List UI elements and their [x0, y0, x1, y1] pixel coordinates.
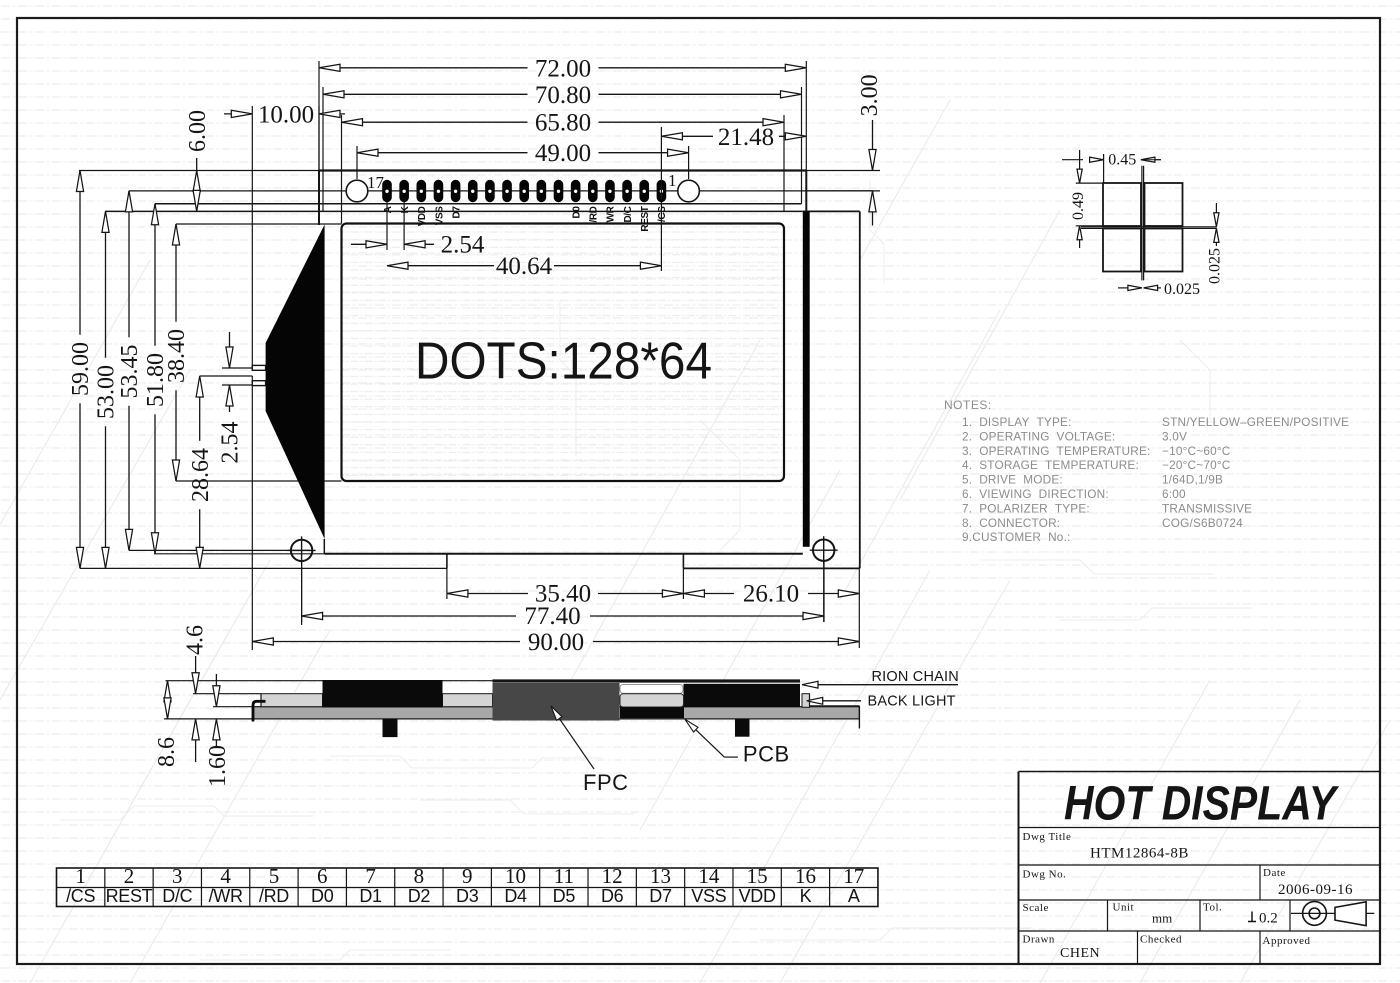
- svg-text:13: 13: [650, 864, 671, 888]
- svg-text:D6: D6: [601, 886, 624, 906]
- svg-text:A: A: [848, 886, 860, 906]
- svg-text:−20°C~70°C: −20°C~70°C: [1162, 458, 1231, 472]
- svg-text:6:00: 6:00: [1162, 487, 1186, 501]
- svg-text:COG/S6B0724: COG/S6B0724: [1162, 516, 1243, 530]
- svg-text:Dwg No.: Dwg No.: [1023, 869, 1067, 881]
- svg-text:CHEN: CHEN: [1060, 946, 1100, 961]
- svg-text:/CS: /CS: [66, 886, 95, 906]
- svg-text:1/64D,1/9B: 1/64D,1/9B: [1162, 473, 1223, 487]
- svg-text:2.54: 2.54: [218, 422, 244, 464]
- svg-text:REST: REST: [640, 206, 651, 231]
- svg-text:2: 2: [124, 864, 135, 888]
- svg-text:8: 8: [414, 864, 425, 888]
- svg-text:3.00: 3.00: [857, 74, 883, 116]
- svg-text:TRANSMISSIVE: TRANSMISSIVE: [1162, 501, 1252, 515]
- svg-text:3: 3: [172, 864, 183, 888]
- svg-text:1. DISPLAY TYPE:: 1. DISPLAY TYPE:: [962, 415, 1072, 429]
- svg-text:17: 17: [367, 173, 385, 192]
- svg-text:/CS: /CS: [657, 206, 668, 222]
- svg-text:4.6: 4.6: [183, 625, 209, 655]
- svg-text:FPC: FPC: [583, 770, 629, 795]
- svg-text:/WR: /WR: [209, 886, 243, 906]
- svg-text:21.48: 21.48: [718, 124, 774, 151]
- svg-text:D/C: D/C: [623, 206, 634, 222]
- svg-text:D3: D3: [456, 886, 479, 906]
- svg-text:16: 16: [795, 864, 816, 888]
- svg-text:VDD: VDD: [417, 206, 428, 226]
- svg-text:8. CONNECTOR:: 8. CONNECTOR:: [962, 516, 1060, 530]
- svg-text:D7: D7: [451, 206, 462, 219]
- svg-text:53.00: 53.00: [94, 365, 120, 419]
- svg-text:NOTES:: NOTES:: [944, 398, 992, 412]
- svg-text:Dwg Title: Dwg Title: [1023, 831, 1072, 843]
- svg-text:/WR: /WR: [606, 205, 617, 224]
- svg-text:2. OPERATING VOLTAGE:: 2. OPERATING VOLTAGE:: [962, 429, 1115, 443]
- svg-text:17: 17: [843, 864, 864, 888]
- svg-text:Approved: Approved: [1263, 935, 1311, 947]
- svg-text:28.64: 28.64: [188, 448, 214, 502]
- svg-text:12: 12: [602, 864, 623, 888]
- svg-text:0.49: 0.49: [1070, 192, 1087, 220]
- svg-text:9.CUSTOMER No.:: 9.CUSTOMER No.:: [962, 530, 1071, 544]
- svg-text:49.00: 49.00: [535, 140, 591, 167]
- svg-text:K: K: [800, 886, 812, 906]
- svg-text:Date: Date: [1263, 867, 1286, 879]
- svg-text:26.10: 26.10: [743, 581, 799, 608]
- svg-text:PCB: PCB: [743, 742, 790, 767]
- svg-text:VDD: VDD: [739, 886, 776, 906]
- svg-text:53.45: 53.45: [117, 345, 143, 399]
- svg-text:D0: D0: [571, 206, 582, 219]
- svg-text:11: 11: [554, 864, 574, 888]
- svg-text:1: 1: [668, 171, 677, 190]
- svg-text:HTM12864-8B: HTM12864-8B: [1090, 846, 1189, 862]
- svg-text:38.40: 38.40: [164, 329, 190, 383]
- svg-text:4. STORAGE TEMPERATURE:: 4. STORAGE TEMPERATURE:: [962, 458, 1139, 472]
- svg-text:/RD: /RD: [259, 886, 289, 906]
- svg-text:1.60: 1.60: [205, 745, 231, 787]
- svg-text:Drawn: Drawn: [1023, 934, 1055, 946]
- svg-text:D7: D7: [649, 886, 672, 906]
- svg-text:RION CHAIN: RION CHAIN: [872, 669, 959, 685]
- svg-text:3.0V: 3.0V: [1162, 429, 1187, 443]
- svg-text:BACK LIGHT: BACK LIGHT: [868, 694, 956, 710]
- svg-text:K: K: [400, 205, 411, 213]
- svg-text:Unit: Unit: [1113, 902, 1135, 914]
- svg-text:77.40: 77.40: [524, 603, 580, 630]
- svg-text:7. POLARIZER TYPE:: 7. POLARIZER TYPE:: [962, 501, 1090, 515]
- svg-text:VSS: VSS: [434, 206, 445, 226]
- svg-text:2006-09-16: 2006-09-16: [1278, 882, 1353, 898]
- svg-text:D/C: D/C: [162, 886, 192, 906]
- svg-text:Tol.: Tol.: [1203, 902, 1222, 914]
- svg-text:Checked: Checked: [1140, 934, 1182, 946]
- svg-text:9: 9: [462, 864, 473, 888]
- svg-text:HOT DISPLAY: HOT DISPLAY: [1064, 778, 1339, 831]
- svg-text:5: 5: [269, 864, 280, 888]
- svg-text:0.2: 0.2: [1259, 911, 1278, 927]
- svg-text:90.00: 90.00: [528, 629, 584, 656]
- svg-text:6: 6: [317, 864, 328, 888]
- svg-text:mm: mm: [1152, 911, 1172, 926]
- svg-text:STN/YELLOW–GREEN/POSITIVE: STN/YELLOW–GREEN/POSITIVE: [1162, 415, 1349, 429]
- svg-text:5. DRIVE MODE:: 5. DRIVE MODE:: [962, 473, 1063, 487]
- svg-text:0.45: 0.45: [1108, 152, 1136, 169]
- svg-text:/RD: /RD: [588, 206, 599, 222]
- svg-text:Scale: Scale: [1023, 902, 1049, 914]
- svg-text:72.00: 72.00: [535, 55, 591, 82]
- svg-text:0.025: 0.025: [1206, 248, 1223, 284]
- svg-text:−10°C~60°C: −10°C~60°C: [1162, 444, 1231, 458]
- svg-text:70.80: 70.80: [535, 82, 591, 109]
- svg-text:6.00: 6.00: [185, 110, 211, 152]
- svg-text:15: 15: [747, 864, 768, 888]
- svg-text:10: 10: [505, 864, 526, 888]
- svg-text:4: 4: [220, 864, 231, 888]
- svg-text:40.64: 40.64: [496, 253, 553, 280]
- svg-text:6. VIEWING DIRECTION:: 6. VIEWING DIRECTION:: [962, 487, 1109, 501]
- svg-text:8.6: 8.6: [154, 737, 180, 767]
- svg-text:14: 14: [698, 864, 720, 888]
- svg-text:D1: D1: [359, 886, 382, 906]
- svg-text:65.80: 65.80: [535, 110, 591, 137]
- svg-text:D4: D4: [504, 886, 527, 906]
- svg-text:1: 1: [75, 864, 86, 888]
- svg-text:3. OPERATING TEMPERATURE:: 3. OPERATING TEMPERATURE:: [962, 444, 1151, 458]
- svg-text:D2: D2: [408, 886, 431, 906]
- svg-text:10.00: 10.00: [258, 101, 314, 128]
- svg-text:D5: D5: [553, 886, 576, 906]
- svg-text:REST: REST: [106, 886, 153, 906]
- svg-text:0.025: 0.025: [1164, 281, 1200, 298]
- svg-text:2.54: 2.54: [441, 232, 485, 259]
- svg-text:7: 7: [365, 864, 376, 888]
- svg-text:DOTS:128*64: DOTS:128*64: [415, 333, 712, 391]
- svg-text:59.00: 59.00: [68, 342, 94, 396]
- svg-text:D0: D0: [311, 886, 334, 906]
- svg-text:A: A: [383, 206, 394, 213]
- svg-text:VSS: VSS: [691, 886, 726, 906]
